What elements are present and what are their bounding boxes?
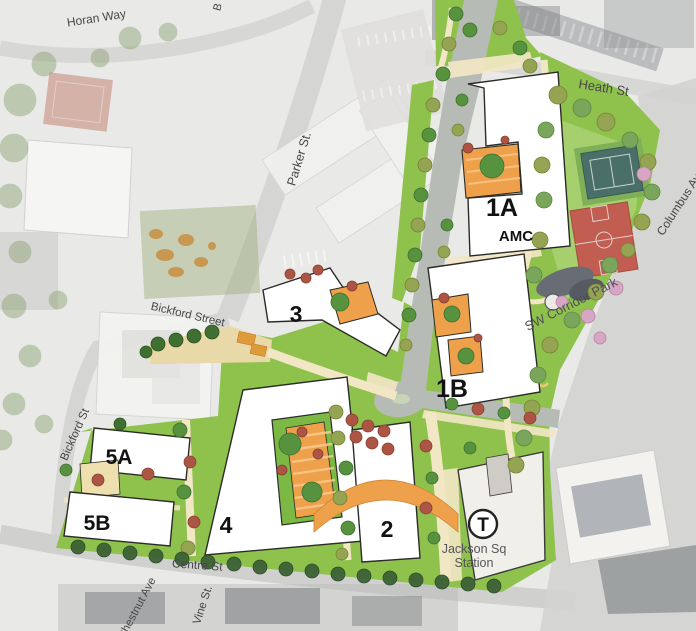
- tree: [472, 403, 484, 415]
- tree: [140, 346, 152, 358]
- tree: [414, 188, 428, 202]
- tree: [151, 337, 165, 351]
- tree: [493, 21, 507, 35]
- tree: [97, 543, 111, 557]
- tree: [409, 573, 423, 587]
- tree: [329, 405, 343, 419]
- tree: [301, 273, 311, 283]
- tree: [184, 456, 196, 468]
- tree: [173, 423, 187, 437]
- tree: [594, 332, 606, 344]
- tree: [383, 571, 397, 585]
- tree: [513, 41, 527, 55]
- tree: [35, 415, 53, 433]
- building-label-1b: 1B: [436, 375, 468, 403]
- tree: [279, 562, 293, 576]
- tree: [420, 440, 432, 452]
- tree: [279, 433, 301, 455]
- tree: [169, 333, 183, 347]
- tree: [49, 291, 67, 309]
- tree: [357, 569, 371, 583]
- tree: [538, 122, 554, 138]
- tree: [523, 59, 537, 73]
- tree: [508, 457, 524, 473]
- tree: [426, 98, 440, 112]
- tree: [341, 521, 355, 535]
- tree: [634, 214, 650, 230]
- building-label-5a: 5A: [106, 446, 133, 469]
- tree: [331, 567, 345, 581]
- building-label-3: 3: [290, 301, 303, 327]
- tree: [91, 49, 109, 67]
- tree: [420, 502, 432, 514]
- tree: [159, 23, 177, 41]
- tree: [487, 579, 501, 593]
- tree: [331, 293, 349, 311]
- tree: [92, 474, 104, 486]
- tree: [458, 348, 474, 364]
- tree: [277, 465, 287, 475]
- tree: [2, 294, 26, 318]
- tree: [456, 94, 468, 106]
- tree: [187, 329, 201, 343]
- tree: [331, 431, 345, 445]
- tree: [400, 339, 412, 351]
- tree: [463, 23, 477, 37]
- tree: [439, 293, 449, 303]
- tree: [313, 265, 323, 275]
- tree: [463, 143, 473, 153]
- tree: [71, 540, 85, 554]
- tree: [442, 37, 456, 51]
- tree: [418, 158, 432, 172]
- tree: [346, 414, 358, 426]
- tree: [302, 482, 322, 502]
- tree: [347, 281, 357, 291]
- tree: [532, 232, 548, 248]
- tree: [19, 345, 41, 367]
- site-plan-canvas: Horan Way B Parker St. Heath St Bickford…: [0, 0, 696, 631]
- faded-building-s3: [352, 596, 422, 626]
- tree: [3, 393, 25, 415]
- tree: [602, 257, 618, 273]
- faded-building-n3: [604, 0, 694, 48]
- site-plan-map: Horan Way B Parker St. Heath St Bickford…: [0, 0, 696, 631]
- tree: [436, 67, 450, 81]
- tree: [339, 461, 353, 475]
- tree: [435, 575, 449, 589]
- building-5b: [64, 492, 174, 546]
- tree: [333, 491, 347, 505]
- tree: [405, 278, 419, 292]
- tree: [428, 532, 440, 544]
- tree: [188, 516, 200, 528]
- faded-roof-2: [152, 362, 200, 404]
- building-label-2: 2: [381, 516, 394, 542]
- tree: [581, 309, 595, 323]
- tree: [474, 334, 482, 342]
- tree: [336, 548, 348, 560]
- tree: [227, 557, 241, 571]
- tree: [350, 431, 362, 443]
- tree: [402, 308, 416, 322]
- tree: [441, 219, 453, 231]
- tree: [253, 560, 267, 574]
- tree: [4, 84, 36, 116]
- tree: [621, 243, 635, 257]
- tree: [60, 464, 72, 476]
- tree: [422, 128, 436, 142]
- tree: [461, 577, 475, 591]
- tree: [149, 549, 163, 563]
- tree: [549, 86, 567, 104]
- tree: [452, 124, 464, 136]
- tree: [498, 407, 510, 419]
- tree: [0, 184, 22, 208]
- tree: [438, 246, 450, 258]
- tree: [573, 99, 591, 117]
- tree: [622, 132, 638, 148]
- tree: [536, 192, 552, 208]
- station-label-line1: Jackson Sq: [442, 542, 507, 556]
- faded-building-s2: [225, 588, 320, 624]
- building-label-5b: 5B: [84, 512, 111, 535]
- tree: [0, 134, 28, 162]
- tree: [362, 420, 374, 432]
- tree: [464, 442, 476, 454]
- tree: [530, 367, 546, 383]
- tree: [382, 443, 394, 455]
- tree: [526, 267, 542, 283]
- tree: [516, 430, 532, 446]
- tree: [297, 427, 307, 437]
- tree: [542, 337, 558, 353]
- building-label-4: 4: [220, 512, 233, 538]
- t-logo-letter: T: [477, 515, 489, 536]
- tree: [534, 157, 550, 173]
- tree: [32, 52, 56, 76]
- tree: [480, 154, 504, 178]
- tree: [524, 412, 536, 424]
- station-label-line2: Station: [455, 556, 494, 570]
- tree: [114, 418, 126, 430]
- tree: [285, 269, 295, 279]
- tree: [177, 485, 191, 499]
- tree: [444, 306, 460, 322]
- tree: [123, 546, 137, 560]
- tree: [366, 437, 378, 449]
- station-notch: [486, 454, 512, 496]
- tree: [378, 425, 390, 437]
- tree: [449, 7, 463, 21]
- tree: [119, 27, 141, 49]
- tree: [644, 184, 660, 200]
- tree: [313, 449, 323, 459]
- building-label-1a: 1A: [486, 194, 518, 222]
- tree: [637, 167, 651, 181]
- tree: [501, 136, 509, 144]
- tree: [305, 564, 319, 578]
- tree: [9, 241, 31, 263]
- building-label-amc: AMC: [499, 228, 533, 245]
- tree: [411, 218, 425, 232]
- tree: [426, 472, 438, 484]
- faded-building-topleft: [24, 140, 132, 238]
- tree: [142, 468, 154, 480]
- tree: [597, 113, 615, 131]
- tree: [408, 248, 422, 262]
